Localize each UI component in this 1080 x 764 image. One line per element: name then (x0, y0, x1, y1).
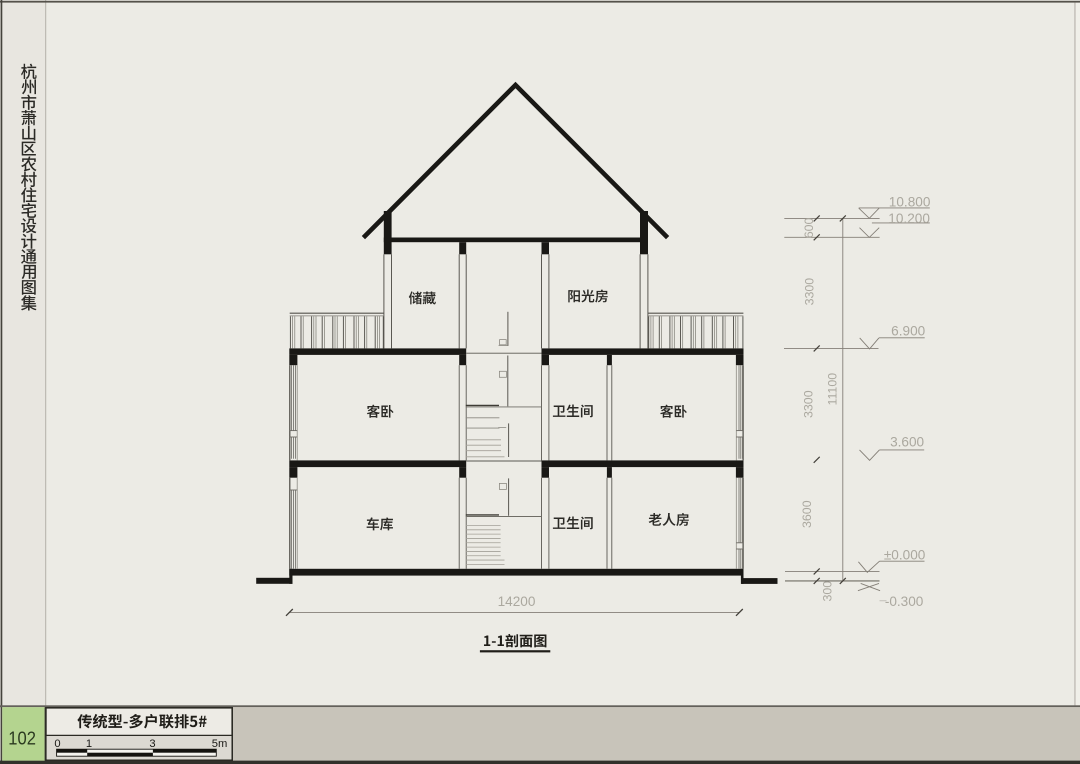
svg-text:14200: 14200 (498, 594, 536, 609)
svg-text:102: 102 (8, 728, 36, 749)
svg-text:5m: 5m (212, 738, 228, 750)
svg-text:3300: 3300 (803, 278, 817, 306)
svg-text:11100: 11100 (826, 373, 840, 406)
svg-text:10.800: 10.800 (889, 195, 931, 210)
svg-text:-0.300: -0.300 (885, 594, 924, 609)
svg-text:3.600: 3.600 (890, 435, 924, 450)
svg-text:10.200: 10.200 (888, 211, 930, 226)
svg-text:300: 300 (821, 581, 835, 602)
svg-text:3600: 3600 (800, 500, 814, 528)
svg-text:600: 600 (802, 217, 816, 238)
svg-text:0: 0 (54, 738, 60, 750)
svg-text:6.900: 6.900 (891, 324, 925, 339)
svg-text:±0.000: ±0.000 (884, 547, 926, 562)
svg-text:1: 1 (86, 738, 92, 750)
svg-text:3: 3 (149, 738, 155, 750)
svg-text:3300: 3300 (802, 390, 816, 418)
